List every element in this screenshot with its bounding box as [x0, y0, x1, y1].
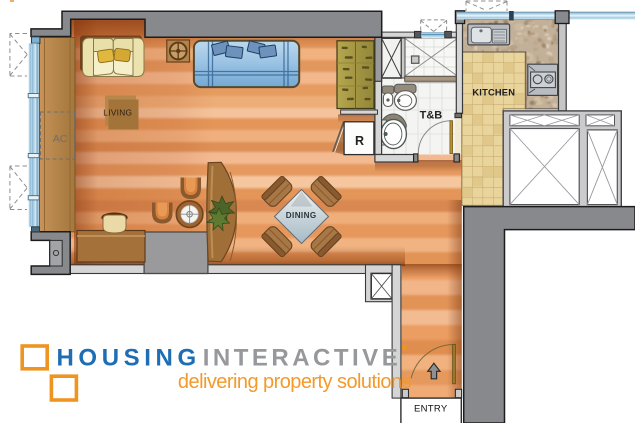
svg-text:T&B: T&B	[420, 110, 443, 122]
svg-text:LIVING: LIVING	[103, 108, 132, 118]
svg-text:DINING: DINING	[286, 211, 317, 220]
svg-text:delivering property solutions: delivering property solutions	[178, 371, 412, 393]
svg-text:HOUSING: HOUSING	[57, 344, 201, 371]
svg-text:AC: AC	[53, 133, 68, 145]
svg-text:INTERACTIVE: INTERACTIVE	[203, 344, 402, 371]
svg-text:ENTRY: ENTRY	[414, 404, 448, 415]
svg-text:KITCHEN: KITCHEN	[472, 88, 515, 98]
svg-text:R: R	[355, 134, 364, 148]
